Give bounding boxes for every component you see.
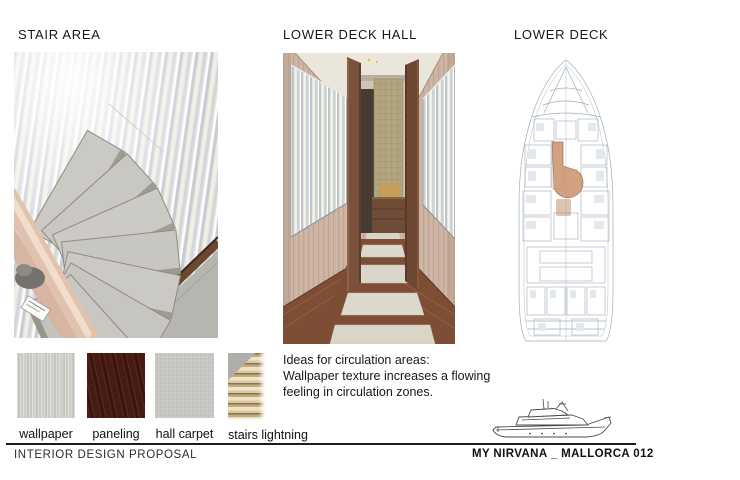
lower-deck-hall-photo xyxy=(283,53,455,344)
swatch-label: stairs lightning xyxy=(228,428,266,442)
note-line: Ideas for circulation areas: xyxy=(283,352,490,368)
corridor-end-room xyxy=(360,75,405,241)
swatch-stairs-lightning: stairs lightning xyxy=(228,353,266,442)
stair-area-photo xyxy=(14,52,218,338)
deck-plan-art xyxy=(510,57,622,350)
stair-area-title: STAIR AREA xyxy=(18,27,101,42)
swatch-paneling: paneling xyxy=(87,353,145,441)
hall-carpet-sample xyxy=(155,353,214,418)
lower-deck-title: LOWER DECK xyxy=(514,27,608,42)
swatch-label: wallpaper xyxy=(17,427,75,441)
circulation-note: Ideas for circulation areas: Wallpaper t… xyxy=(283,352,490,400)
swatch-label: hall carpet xyxy=(155,427,214,441)
footer-divider xyxy=(6,443,636,445)
yacht-profile-sketch xyxy=(486,396,616,444)
proposal-page: STAIR AREA LOWER DECK HALL LOWER DECK xyxy=(0,0,740,480)
footer-project-name: MY NIRVANA _ MALLORCA 012 xyxy=(472,448,654,460)
swatch-label: paneling xyxy=(87,427,145,441)
note-line: feeling in circulation zones. xyxy=(283,384,490,400)
lower-deck-floorplan xyxy=(510,57,622,350)
footer-project-type: INTERIOR DESIGN PROPOSAL xyxy=(14,449,197,461)
lower-deck-hall-title: LOWER DECK HALL xyxy=(283,27,417,42)
corridor-highlight xyxy=(552,142,583,198)
stairs-lightning-sample xyxy=(228,353,266,419)
stair-photo-art xyxy=(14,52,218,338)
swatch-wallpaper: wallpaper xyxy=(17,353,75,441)
note-line: Wallpaper texture increases a flowing xyxy=(283,368,490,384)
paneling-sample xyxy=(87,353,145,418)
salon-table-highlight xyxy=(556,199,571,216)
hall-photo-art xyxy=(283,53,455,344)
wallpaper-sample xyxy=(17,353,75,418)
swatch-hall-carpet: hall carpet xyxy=(155,353,214,441)
